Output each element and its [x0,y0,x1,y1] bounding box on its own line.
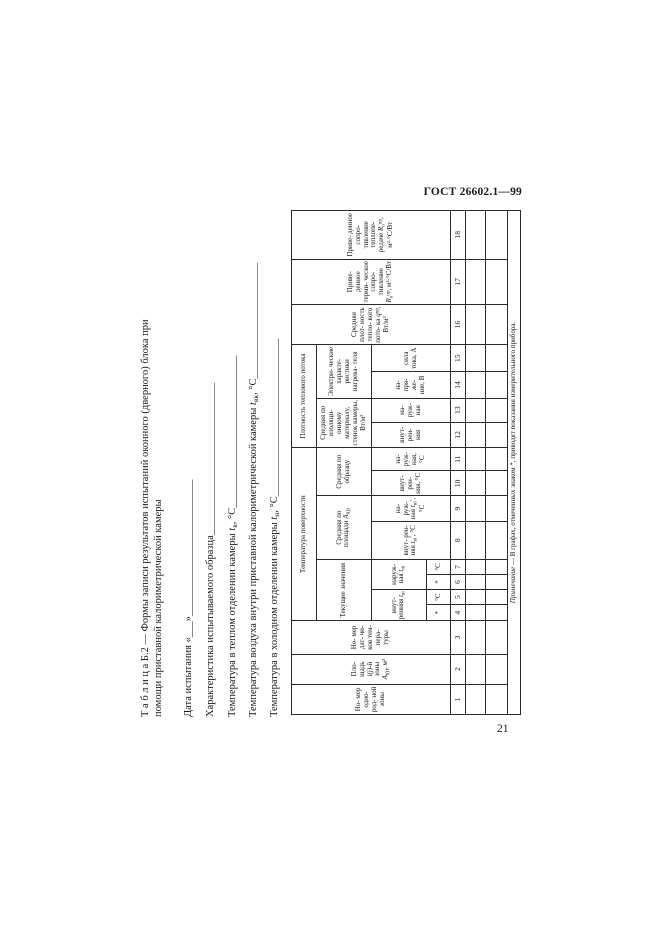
col-header-sensor-number: Но- мер дат- чи- ков тем- пера- туры [292,621,451,654]
data-cell [466,574,486,589]
data-cell [466,345,486,372]
col-header-sample-mean-internal: внут- рен- няя, °С [372,471,451,496]
data-cell [486,621,508,654]
data-cell [466,259,486,304]
data-cell [466,621,486,654]
col-number: 4 [451,605,466,621]
data-cell [466,521,486,559]
data-cell [486,496,508,521]
col-header-voltage: на- пря- же- ние, В [372,372,451,398]
data-cell [486,605,508,621]
col-number: 7 [451,559,466,574]
data-cell [486,654,508,684]
col-number: 15 [451,345,466,372]
col-number: 10 [451,471,466,496]
data-cell [486,684,508,714]
form-line-sample-characteristic: Характеристика испытываемого образца____… [205,383,217,717]
data-cell [466,496,486,521]
data-cell [486,345,508,372]
data-cell [486,521,508,559]
data-cell [466,422,486,447]
col-number: 14 [451,372,466,398]
data-cell [466,605,486,621]
col-number: 8 [451,521,466,559]
data-cell [486,398,508,422]
data-cell [466,590,486,605]
empty-data-row [486,211,508,715]
group-header-heat-flux-density: Плотность теплового потока [292,345,317,448]
col-number: 2 [451,654,466,684]
col-number: 1 [451,684,466,714]
group-header-mean-by-sample: Средняя по образцу [317,447,372,495]
data-cell [486,471,508,496]
col-header-area-mean-external: на- руж- ная tнi′, °С [372,496,451,521]
data-cell [486,590,508,605]
col-number: 5 [451,590,466,605]
col-number: 16 [451,304,466,344]
rotated-page-content: Т а б л и ц а Б.2 — Формы записи результ… [139,205,525,745]
subcell-degrees: °С [427,590,451,605]
data-cell [486,304,508,344]
data-cell [466,304,486,344]
col-header-current-external: наруж- ная tнi [372,559,427,589]
group-header-heater-electrical: Электри- ческие характе- ристики нагрева… [317,345,372,398]
data-cell [486,422,508,447]
col-number: 6 [451,574,466,589]
col-header-mean-heat-flux: Средняя плот- ность тепло- вого пото- ка… [292,304,451,344]
group-header-mean-by-insulation: Средняя по изоляци- онному материалу, ст… [317,398,372,447]
col-header-flux-external: на- руж- ная [372,398,451,422]
subcell-asterisk: * [427,574,451,589]
col-number: 9 [451,496,466,521]
col-header-reduced-heat-transfer-resistance: Приве- денное сопро- тивление теплопе- р… [292,211,451,260]
table-caption-line2: помощи приставной калориметрической каме… [153,499,165,717]
col-header-current-internal: внут- ренняя tвi [372,590,427,621]
form-line-test-date: Дата испытания «___»____________________… [183,480,195,717]
empty-data-row [466,211,486,715]
col-number: 13 [451,398,466,422]
group-header-current-values: Текущие значения [317,559,372,620]
form-line-cold-compartment-temp: Температура в холодном отделении камеры … [269,339,283,717]
data-cell [486,559,508,574]
data-cell [466,471,486,496]
data-cell [466,447,486,470]
table-footnote: Примечание — В графах, отмеченных знаком… [508,211,521,715]
data-cell [486,574,508,589]
results-table: Но- мер одно- род- ной зоны Пло- щадь i(… [291,210,521,715]
col-number: 12 [451,422,466,447]
col-number: 3 [451,621,466,654]
column-number-row: 1 2 3 4 5 6 7 8 9 10 11 12 13 14 15 16 1… [451,211,466,715]
col-header-flux-internal: внут- рен- няя [372,422,451,447]
data-cell [466,654,486,684]
col-header-zone-number: Но- мер одно- род- ной зоны [292,684,451,714]
data-cell [466,684,486,714]
col-number: 11 [451,447,466,470]
data-cell [466,559,486,574]
col-header-reduced-thermal-resistance: Приве- денное терми- ческое сопро- тивле… [292,259,451,304]
gost-standard-header: ГОСТ 26602.1—99 [402,186,522,198]
col-number: 17 [451,259,466,304]
data-cell [466,211,486,260]
col-header-sample-mean-external: на- руж- ная, °С [372,447,451,470]
data-cell [486,211,508,260]
data-cell [486,372,508,398]
data-cell [486,259,508,304]
form-line-warm-compartment-temp: Температура в теплом отделении камеры tв… [227,356,241,717]
col-header-area-mean-internal: внут- рен- няя tвi′, °С [372,521,451,559]
col-header-current-amps: сила тока, А [372,345,451,372]
col-number: 18 [451,211,466,260]
data-cell [466,398,486,422]
col-header-zone-area: Пло- щадь i(j)-й зоны Ai(j), м² [292,654,451,684]
group-header-mean-by-area: Средняя по площади Ai(j) [317,496,372,559]
form-line-calorimeter-air-temp: Температура воздуха внутри приставной ка… [248,263,262,717]
page-number: 21 [497,723,509,735]
subcell-asterisk: * [427,605,451,621]
subcell-degrees: °С [427,559,451,574]
data-cell [486,447,508,470]
table-caption-line1: Т а б л и ц а Б.2 — Формы записи результ… [140,319,152,717]
group-header-surface-temperature: Температура поверхности [292,447,317,620]
data-cell [466,372,486,398]
